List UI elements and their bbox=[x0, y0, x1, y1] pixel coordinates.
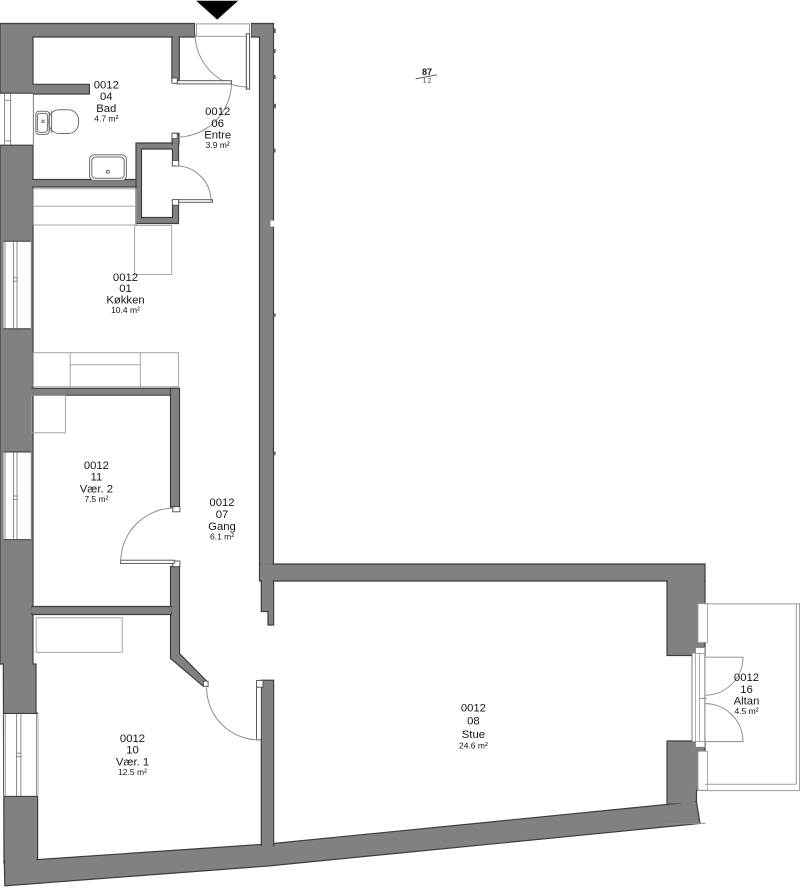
svg-text:4.5 m²: 4.5 m² bbox=[734, 706, 758, 716]
svg-text:10.4 m²: 10.4 m² bbox=[111, 305, 140, 315]
svg-text:06: 06 bbox=[211, 118, 224, 130]
svg-text:12.5 m²: 12.5 m² bbox=[118, 767, 147, 777]
svg-text:0012: 0012 bbox=[209, 497, 234, 509]
svg-text:1 2: 1 2 bbox=[423, 79, 432, 85]
svg-text:0012: 0012 bbox=[94, 79, 119, 91]
svg-text:0012: 0012 bbox=[113, 272, 138, 284]
svg-text:01: 01 bbox=[119, 283, 132, 295]
svg-text:08: 08 bbox=[467, 716, 480, 728]
svg-text:7.5 m²: 7.5 m² bbox=[84, 494, 108, 504]
svg-text:16: 16 bbox=[740, 684, 753, 696]
svg-text:10: 10 bbox=[126, 745, 139, 757]
svg-text:0012: 0012 bbox=[120, 733, 145, 745]
svg-text:4.7 m²: 4.7 m² bbox=[94, 113, 118, 123]
svg-text:0012: 0012 bbox=[205, 106, 230, 118]
svg-text:Stue: Stue bbox=[462, 729, 485, 741]
svg-text:11: 11 bbox=[91, 472, 103, 484]
svg-text:0012: 0012 bbox=[84, 460, 109, 472]
svg-text:0012: 0012 bbox=[461, 702, 486, 714]
svg-text:6.1 m²: 6.1 m² bbox=[210, 532, 234, 542]
svg-text:0012: 0012 bbox=[734, 672, 759, 684]
svg-text:3.9 m²: 3.9 m² bbox=[206, 140, 230, 150]
svg-text:04: 04 bbox=[100, 91, 113, 103]
svg-text:87: 87 bbox=[422, 67, 432, 77]
svg-text:07: 07 bbox=[216, 509, 229, 521]
svg-text:24.6 m²: 24.6 m² bbox=[459, 740, 488, 750]
